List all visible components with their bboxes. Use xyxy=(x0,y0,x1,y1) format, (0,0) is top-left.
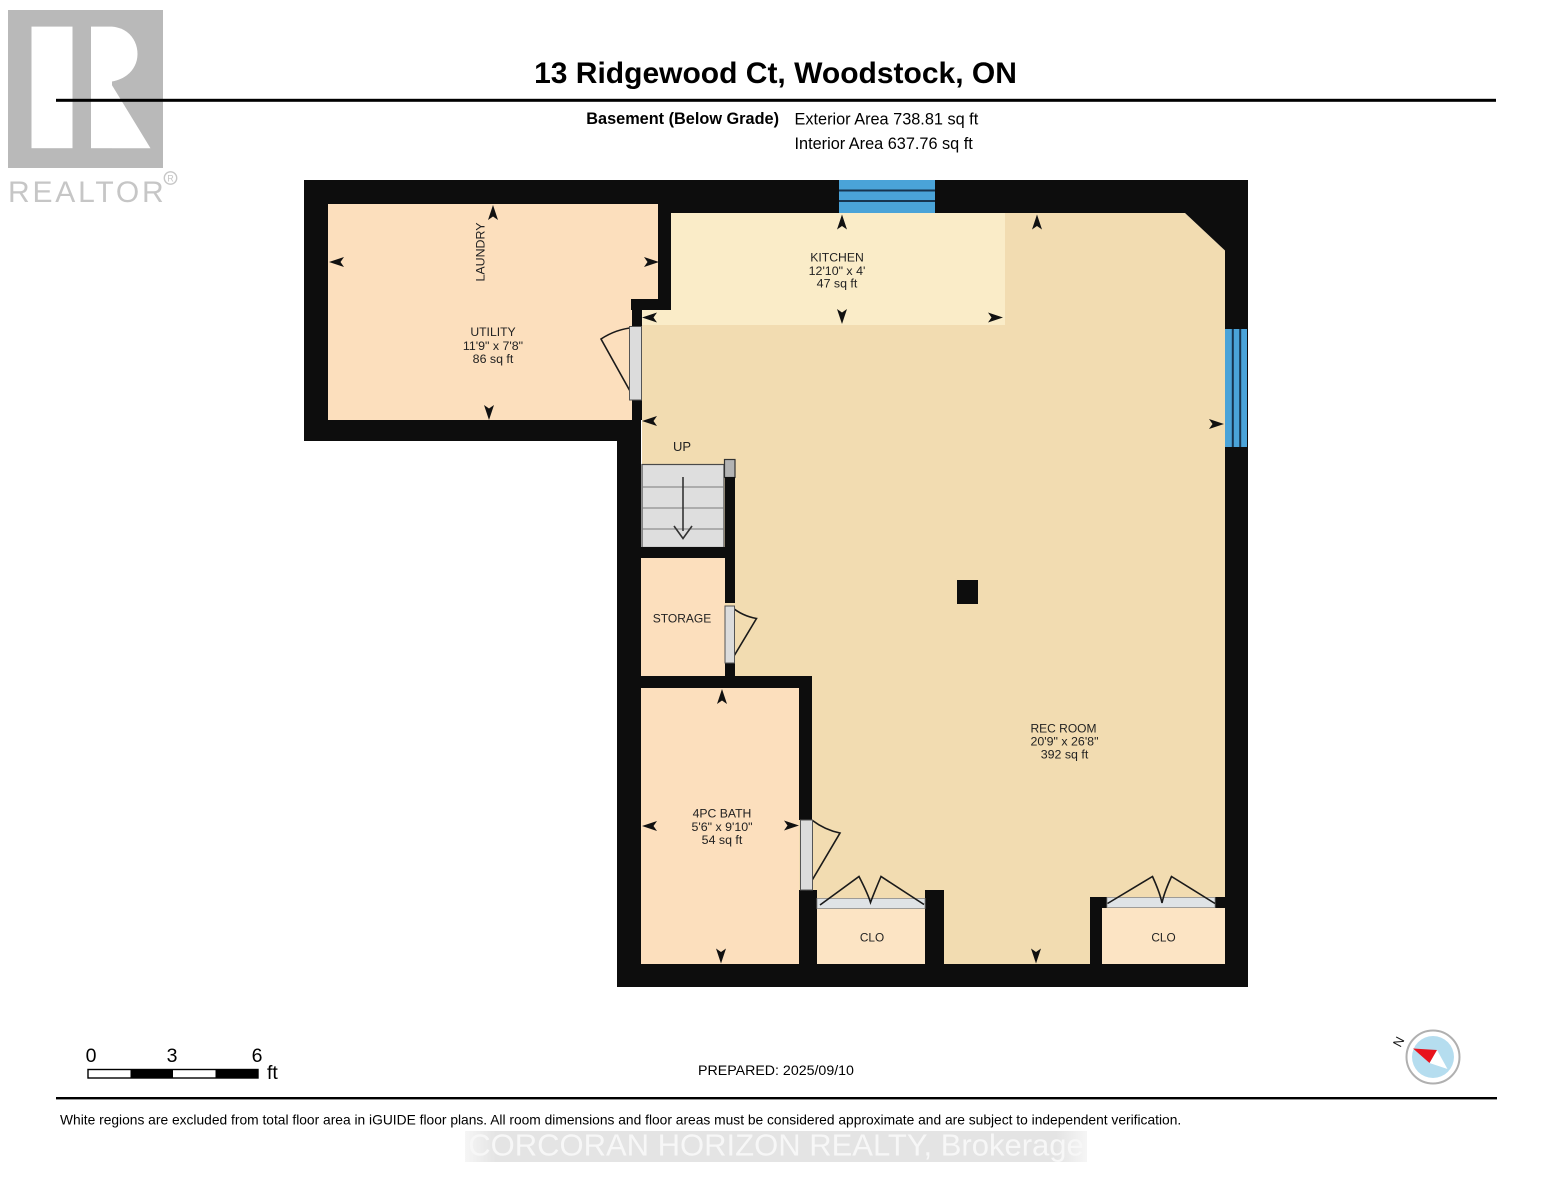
svg-text:CORCORAN HORIZON REALTY, Broke: CORCORAN HORIZON REALTY, Brokerage xyxy=(468,1128,1084,1163)
svg-text:11'9" x 7'8": 11'9" x 7'8" xyxy=(463,339,523,353)
svg-text:KITCHEN: KITCHEN xyxy=(810,251,864,265)
svg-text:6: 6 xyxy=(252,1045,263,1067)
svg-text:R: R xyxy=(167,174,174,184)
svg-text:REC ROOM: REC ROOM xyxy=(1031,722,1097,736)
svg-text:UTILITY: UTILITY xyxy=(470,325,515,339)
svg-text:UP: UP xyxy=(673,439,691,454)
svg-text:13 Ridgewood Ct, Woodstock, ON: 13 Ridgewood Ct, Woodstock, ON xyxy=(534,57,1017,90)
svg-text:86 sq ft: 86 sq ft xyxy=(473,352,514,366)
svg-text:392 sq ft: 392 sq ft xyxy=(1041,748,1089,762)
svg-text:Exterior Area 738.81 sq ft: Exterior Area 738.81 sq ft xyxy=(795,111,979,129)
svg-text:5'6" x 9'10": 5'6" x 9'10" xyxy=(691,820,752,834)
svg-text:54 sq ft: 54 sq ft xyxy=(702,833,743,847)
svg-text:Interior Area 637.76 sq ft: Interior Area 637.76 sq ft xyxy=(795,135,974,153)
svg-text:4PC BATH: 4PC BATH xyxy=(693,807,752,821)
svg-text:3: 3 xyxy=(167,1045,178,1067)
svg-text:0: 0 xyxy=(86,1045,97,1067)
svg-text:PREPARED: 2025/09/10: PREPARED: 2025/09/10 xyxy=(698,1063,854,1079)
svg-text:White regions are excluded fro: White regions are excluded from total fl… xyxy=(60,1113,1181,1128)
svg-text:Basement (Below Grade): Basement (Below Grade) xyxy=(586,110,779,128)
svg-text:CLO: CLO xyxy=(1151,931,1175,945)
svg-text:LAUNDRY: LAUNDRY xyxy=(474,223,488,282)
svg-text:47 sq ft: 47 sq ft xyxy=(817,277,858,291)
svg-text:REALTOR: REALTOR xyxy=(8,176,167,209)
svg-text:ft: ft xyxy=(267,1062,278,1084)
svg-text:20'9" x 26'8": 20'9" x 26'8" xyxy=(1031,735,1099,749)
svg-text:CLO: CLO xyxy=(860,931,884,945)
svg-text:STORAGE: STORAGE xyxy=(653,612,711,626)
